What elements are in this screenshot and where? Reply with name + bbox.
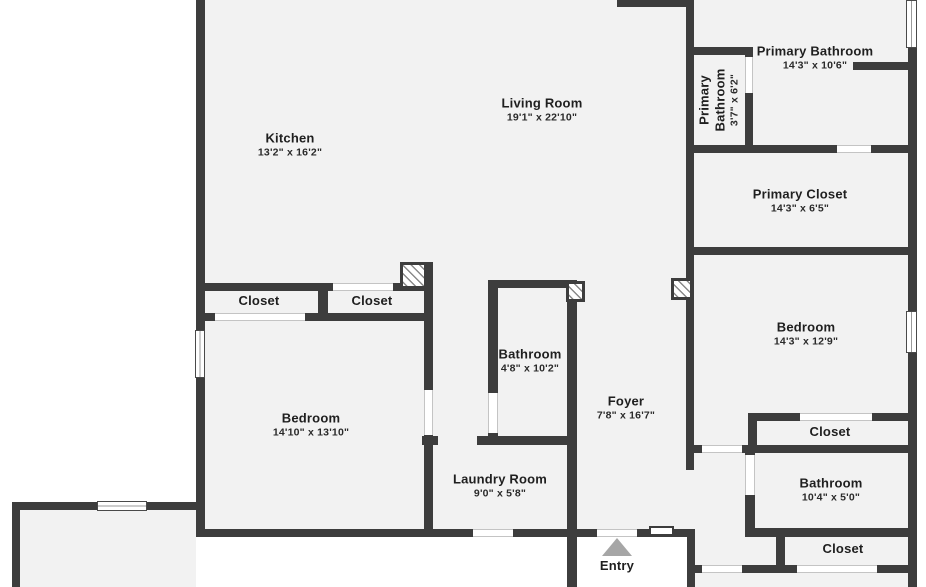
room-name: Living Room [502,96,583,112]
room-label-closet-mid: Closet [352,293,393,309]
wall [488,433,498,445]
wall [513,529,577,537]
window [97,501,147,511]
door-opening [702,565,742,573]
room-label-bedroom-right: Bedroom 14'3" x 12'9" [774,320,838,349]
room-label-laundry-room: Laundry Room 9'0" x 5'8" [453,472,547,501]
window [906,0,917,48]
door-opening [333,283,393,291]
wall [748,413,800,421]
window [195,330,205,378]
wall [196,283,333,291]
door-opening [488,393,498,433]
wall [196,0,205,537]
room-label-entry: Entry [600,558,634,574]
room-name: Primary Closet [753,187,848,203]
wall [742,565,797,573]
room-name: Kitchen [258,131,322,147]
wall [908,0,917,587]
door-opening [702,445,742,453]
wall [872,413,914,421]
room-dims: 10'4" x 5'0" [800,492,863,505]
room-dims: 3'7" x 6'2" [729,56,742,144]
room-label-primary-closet: Primary Closet 14'3" x 6'5" [753,187,848,216]
entry-door-symbol [649,526,674,536]
door-opening [837,145,871,153]
entry-arrow-icon [602,538,632,556]
room-name: Laundry Room [453,472,547,488]
hatch-column [400,262,427,289]
door-opening [597,529,637,537]
room-label-primary-bathroom-small: Primary Bathroom 3'7" x 6'2" [675,78,763,123]
wall [12,502,97,510]
floor-area [20,510,196,587]
wall [567,280,577,587]
room-dims: 14'3" x 12'9" [774,336,838,349]
room-dims: 14'3" x 6'5" [753,203,848,216]
room-name: Bathroom [800,476,863,492]
wall [742,445,917,453]
floor-area [694,529,908,587]
wall [488,280,577,288]
wall [694,47,753,55]
room-label-foyer: Foyer 7'8" x 16'7" [597,394,655,423]
room-name: Closet [239,293,280,309]
room-dims: 13'2" x 16'2" [258,147,322,160]
room-dims: 19'1" x 22'10" [502,112,583,125]
room-label-primary-bathroom: Primary Bathroom 14'3" x 10'6" [757,44,874,73]
door-opening [473,529,513,537]
room-name: Closet [352,293,393,309]
room-label-closet-right: Closet [810,424,851,440]
wall [686,0,694,470]
room-dims: 14'10" x 13'10" [273,427,349,440]
wall [12,502,20,587]
wall [877,565,914,573]
wall [424,435,433,537]
wall [745,495,755,528]
room-label-kitchen: Kitchen 13'2" x 16'2" [258,131,322,160]
room-dims: 14'3" x 10'6" [757,60,874,73]
wall [687,529,695,587]
room-name: Bedroom [273,411,349,427]
wall [617,0,694,7]
floor-plan: Kitchen 13'2" x 16'2" Living Room 19'1" … [0,0,926,587]
room-name: Bathroom [499,347,562,363]
room-name: Foyer [597,394,655,410]
wall [694,445,702,453]
wall [745,528,914,537]
room-dims: 9'0" x 5'8" [453,488,547,501]
window [906,311,917,353]
hatch-column [566,281,585,302]
hatch-column [671,278,693,300]
room-label-bathroom-bottom-right: Bathroom 10'4" x 5'0" [800,476,863,505]
room-name: Bedroom [774,320,838,336]
wall [305,313,432,321]
room-name: Closet [810,424,851,440]
room-name: Primary Bathroom [757,44,874,60]
room-dims: 4'8" x 10'2" [499,363,562,376]
room-label-bedroom-left: Bedroom 14'10" x 13'10" [273,411,349,440]
room-label-living-room: Living Room 19'1" x 22'10" [502,96,583,125]
door-opening [215,313,305,321]
door-opening [800,413,872,421]
room-name: Entry [600,558,634,574]
wall [686,247,917,255]
door-opening [424,390,433,435]
room-label-closet-left: Closet [239,293,280,309]
room-name: Primary Bathroom [697,56,729,144]
room-label-closet-bottom-right: Closet [823,541,864,557]
wall [686,145,837,153]
wall [488,280,498,393]
wall [196,529,473,537]
room-dims: 7'8" x 16'7" [597,410,655,423]
room-name: Closet [823,541,864,557]
room-label-bathroom-mid: Bathroom 4'8" x 10'2" [499,347,562,376]
door-opening [797,565,877,573]
door-opening [745,455,755,495]
wall [577,529,597,537]
